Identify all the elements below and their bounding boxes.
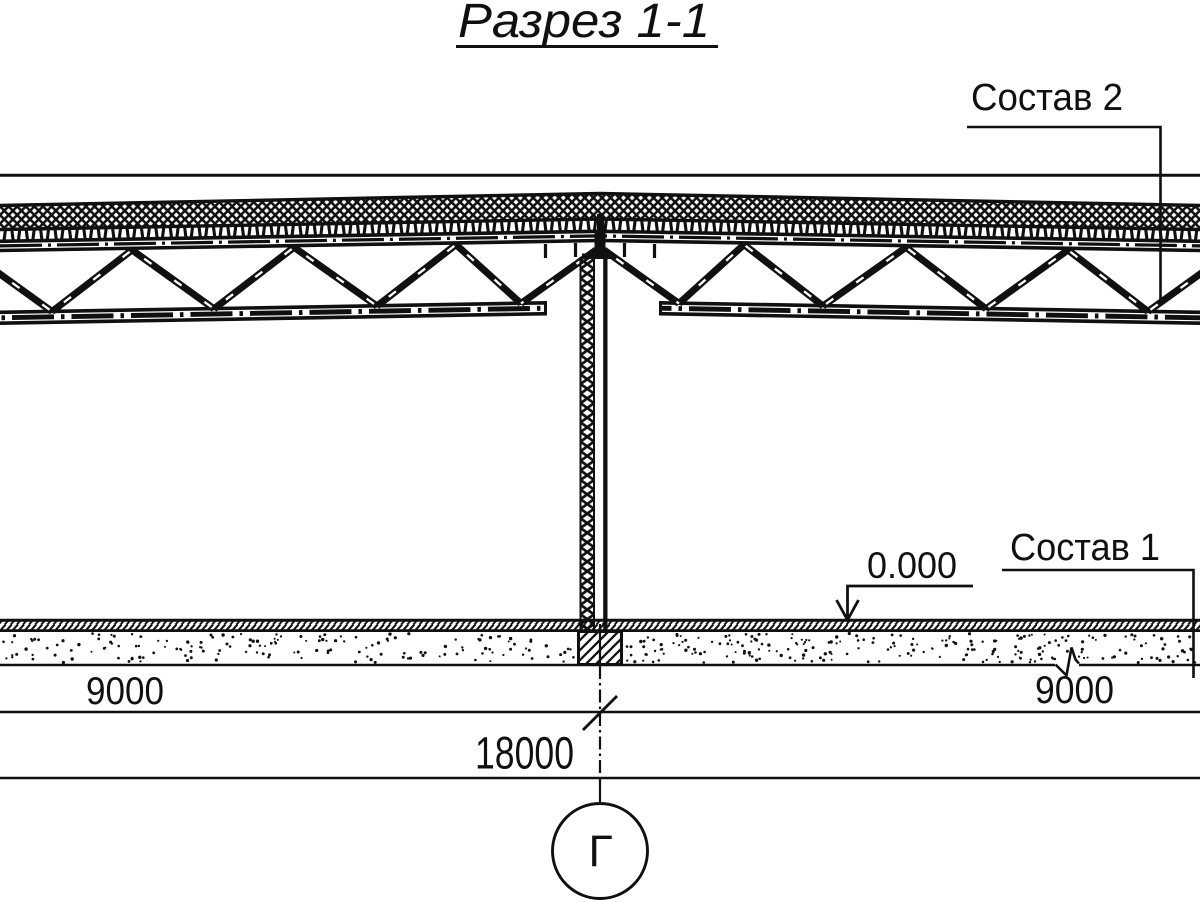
svg-text:0.000: 0.000 [867,545,957,586]
svg-text:Разрез 1-1: Разрез 1-1 [458,0,710,48]
svg-text:18000: 18000 [475,728,574,779]
svg-text:Г: Г [588,828,612,877]
svg-text:9000: 9000 [86,670,164,713]
svg-text:Состав 2: Состав 2 [971,77,1123,119]
svg-text:Состав 1: Состав 1 [1010,527,1160,569]
svg-text:9000: 9000 [1035,669,1114,712]
